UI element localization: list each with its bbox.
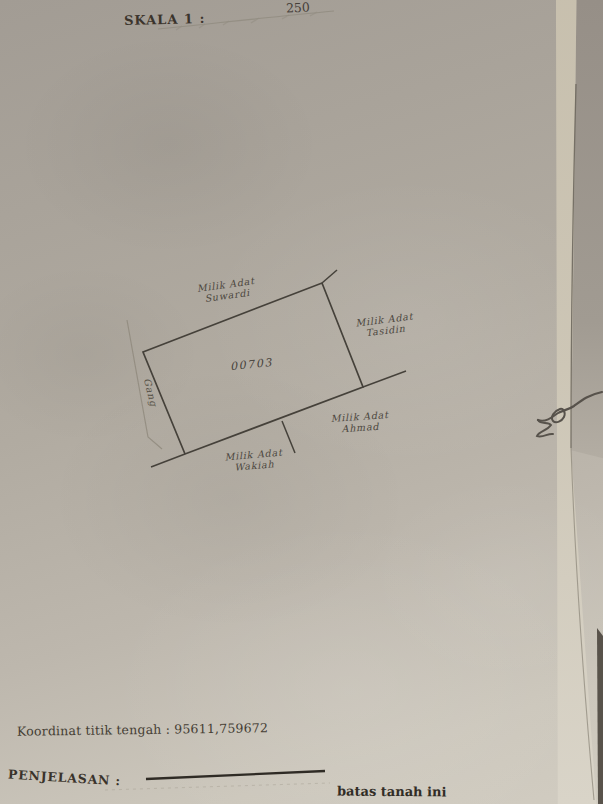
page-crease-line	[571, 84, 576, 448]
bottom-right-dark-edge	[597, 628, 603, 804]
scanned-land-document-page: SKALA 1 : 250 Milik Adat Suwardi Milik A…	[0, 0, 603, 804]
legend-label: batas tanah ini	[337, 784, 447, 800]
scale-label: SKALA 1 :	[124, 11, 206, 28]
legend-line	[146, 771, 325, 779]
parcel-sketch-linework	[0, 0, 603, 804]
boundary-extension-right	[363, 371, 406, 387]
faint-underline	[105, 783, 330, 790]
scale-value: 250	[286, 0, 310, 15]
binding-thread	[537, 392, 602, 436]
boundary-extension-bottom-left	[151, 454, 185, 467]
boundary-extension-top-right	[322, 270, 337, 283]
page-edge-lower	[571, 448, 594, 800]
